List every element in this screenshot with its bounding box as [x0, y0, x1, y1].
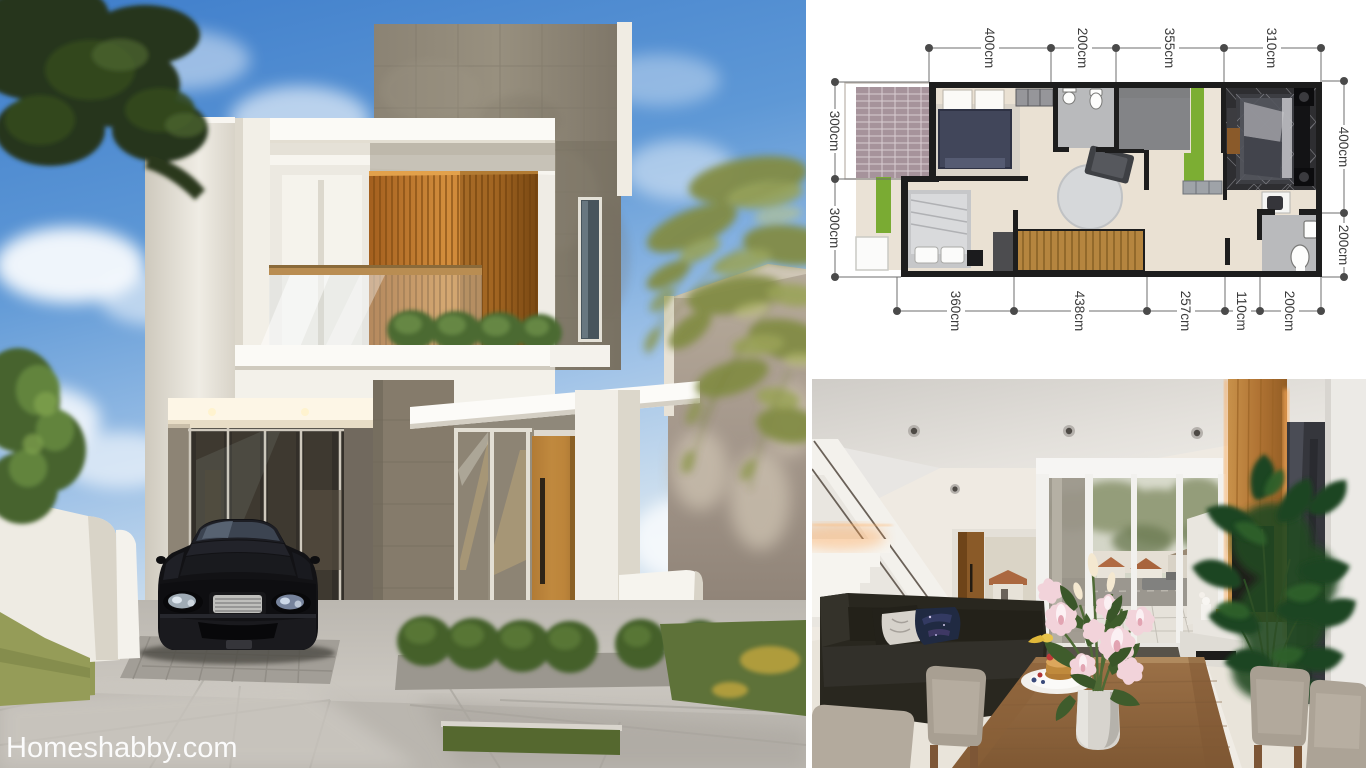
svg-text:400cm: 400cm: [982, 28, 997, 69]
svg-text:310cm: 310cm: [1264, 28, 1279, 69]
svg-text:355cm: 355cm: [1162, 28, 1177, 69]
svg-text:300cm: 300cm: [827, 208, 842, 249]
svg-text:438cm: 438cm: [1072, 291, 1087, 332]
svg-text:110cm: 110cm: [1234, 291, 1249, 331]
svg-text:200cm: 200cm: [1075, 28, 1090, 69]
svg-text:257cm: 257cm: [1178, 291, 1193, 332]
svg-text:360cm: 360cm: [948, 291, 963, 332]
svg-text:400cm: 400cm: [1336, 127, 1351, 168]
svg-text:200cm: 200cm: [1336, 225, 1351, 266]
svg-text:Homeshabby.com: Homeshabby.com: [6, 732, 238, 764]
svg-text:300cm: 300cm: [827, 111, 842, 152]
svg-text:200cm: 200cm: [1282, 291, 1297, 332]
